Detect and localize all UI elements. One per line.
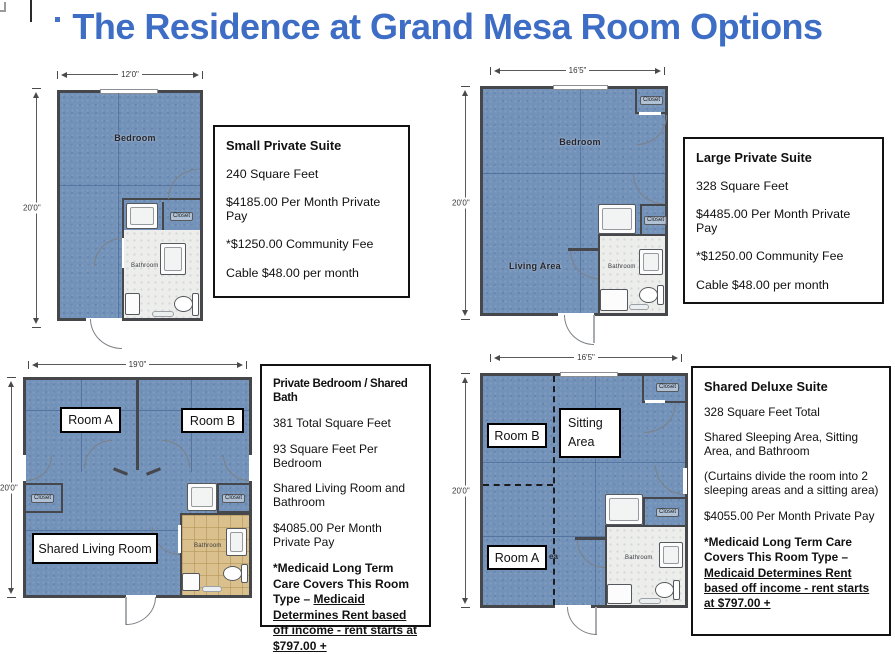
closet-label: Closet bbox=[656, 383, 679, 392]
toilet-fixture bbox=[639, 287, 658, 303]
info-line: Cable $48.00 per month bbox=[696, 278, 875, 293]
living-area-label-fragment: ea bbox=[549, 552, 558, 561]
width-dimension: 16'5" bbox=[490, 353, 682, 362]
window bbox=[100, 89, 158, 94]
floor-area: Closet Room B Sitting Area Room A ea Clo… bbox=[480, 373, 688, 608]
room-b-label: Room B bbox=[190, 414, 235, 428]
info-box-title: Shared Deluxe Suite bbox=[704, 379, 882, 394]
closet: Closet bbox=[635, 89, 665, 114]
floor-area: Closet Bedroom Living Area Closet Bathro… bbox=[480, 86, 668, 316]
entry-door-arc bbox=[567, 607, 597, 635]
entry-door-arc bbox=[90, 319, 122, 349]
info-line: 328 Square Feet bbox=[696, 179, 875, 194]
shower-seat-fixture bbox=[187, 483, 217, 511]
info-box-shared-deluxe-suite: Shared Deluxe Suite 328 Square Feet Tota… bbox=[691, 366, 891, 636]
width-dimension-label: 12'0" bbox=[118, 70, 142, 79]
floor-plan-small-private-suite: 12'0" 20'0" Bedroom Closet Bathroom bbox=[28, 66, 223, 354]
closet: Closet bbox=[162, 202, 200, 230]
width-dimension-label: 16'5" bbox=[566, 66, 590, 75]
width-dimension-label: 19'0" bbox=[126, 360, 150, 369]
floor-area: Room A Room B Closet Closet Bathroom bbox=[23, 377, 252, 598]
closet: Closet bbox=[217, 483, 249, 513]
height-dimension: 20'0" bbox=[30, 88, 42, 328]
interior-wall bbox=[136, 380, 139, 470]
toilet-fixture bbox=[174, 296, 193, 312]
wall-seam bbox=[483, 462, 685, 463]
info-line: Shared Living Room and Bathroom bbox=[273, 481, 422, 509]
sink-fixture bbox=[125, 293, 140, 315]
door-arc bbox=[570, 251, 598, 279]
info-line: Cable $48.00 per month bbox=[226, 266, 401, 281]
bath-mat bbox=[629, 304, 649, 310]
door-arc bbox=[577, 540, 605, 568]
sink-fixture bbox=[600, 289, 628, 311]
door-arc bbox=[655, 465, 685, 495]
toilet-tank bbox=[241, 564, 248, 583]
width-dimension: 19'0" bbox=[28, 360, 247, 369]
bedroom-label: Bedroom bbox=[114, 133, 156, 143]
door-arc bbox=[84, 440, 112, 468]
door-arc bbox=[162, 440, 190, 468]
closet-label: Closet bbox=[656, 508, 679, 517]
info-box-title: Large Private Suite bbox=[696, 150, 875, 165]
toilet-fixture bbox=[655, 582, 674, 598]
closet-label: Closet bbox=[222, 494, 245, 503]
info-line: $4085.00 Per Month Private Pay bbox=[273, 521, 422, 549]
room-b-label-box: Room B bbox=[181, 408, 244, 433]
door-arc bbox=[637, 115, 667, 145]
room-a-label: Room A bbox=[68, 413, 112, 427]
curtain-divider bbox=[553, 376, 555, 605]
closet: Closet bbox=[642, 376, 685, 403]
bathroom-label: Bathroom bbox=[131, 263, 159, 269]
scan-artifact bbox=[30, 0, 32, 22]
bathroom-label: Bathroom bbox=[194, 543, 222, 549]
door-arc bbox=[223, 455, 249, 481]
room-a-label-box: Room A bbox=[60, 407, 121, 433]
height-dimension: 20'0" bbox=[5, 377, 17, 598]
sink-fixture bbox=[182, 573, 200, 591]
info-line: $4485.00 Per Month Private Pay bbox=[696, 207, 875, 236]
entry-door-arc bbox=[564, 315, 594, 345]
sitting-area-label-box: Sitting Area bbox=[559, 408, 621, 458]
toilet-tank bbox=[673, 580, 680, 600]
room-a-label: Room A bbox=[495, 551, 539, 565]
interior-wall bbox=[146, 467, 161, 475]
shower-fixture bbox=[160, 243, 186, 275]
closet: Closet bbox=[26, 483, 63, 513]
info-line: (Curtains divide the room into 2 sleepin… bbox=[704, 470, 882, 498]
height-dimension-label: 20'0" bbox=[452, 198, 470, 209]
height-dimension: 20'0" bbox=[459, 86, 471, 320]
width-dimension-label: 16'5" bbox=[574, 353, 598, 362]
room-b-label-box: Room B bbox=[487, 423, 547, 448]
floor-plan-shared-deluxe-suite: 16'5" 20'0" Closet Room B Sitting Are bbox=[455, 348, 700, 654]
door-arc bbox=[644, 403, 676, 433]
floor-plan-large-private-suite: 16'5" 20'0" Closet Bedroom Living Area C… bbox=[455, 58, 700, 358]
shower-fixture bbox=[639, 249, 663, 275]
info-box-private-bedroom-shared-bath: Private Bedroom / Shared Bath 381 Total … bbox=[260, 364, 431, 627]
floor-area: Bedroom Closet Bathroom bbox=[57, 90, 203, 321]
door-arc bbox=[94, 238, 122, 266]
bathroom-label: Bathroom bbox=[625, 555, 653, 561]
info-box-title: Small Private Suite bbox=[226, 138, 401, 153]
closet-label: Closet bbox=[644, 216, 667, 225]
closet: Closet bbox=[643, 497, 685, 525]
info-line: $4185.00 Per Month Private Pay bbox=[226, 195, 401, 224]
info-line: 93 Square Feet Per Bedroom bbox=[273, 442, 422, 470]
wall-seam bbox=[118, 93, 119, 318]
info-line: Shared Sleeping Area, Sitting Area, and … bbox=[704, 431, 882, 459]
sink-fixture bbox=[607, 584, 632, 604]
curtain-divider bbox=[483, 484, 553, 486]
toilet-tank bbox=[192, 293, 199, 316]
info-box-small-private-suite: Small Private Suite 240 Square Feet $418… bbox=[213, 125, 410, 298]
toilet-tank bbox=[657, 285, 664, 305]
closet: Closet bbox=[640, 204, 665, 234]
info-line: 240 Square Feet bbox=[226, 167, 401, 182]
shared-living-room-label-box: Shared Living Room bbox=[32, 533, 158, 564]
shared-living-room-label: Shared Living Room bbox=[38, 542, 151, 556]
window bbox=[560, 372, 618, 377]
sitting-area-label-line1: Sitting bbox=[568, 414, 603, 433]
height-dimension-label: 20'0" bbox=[452, 485, 470, 496]
door-arc bbox=[26, 455, 52, 481]
info-line: 381 Total Square Feet bbox=[273, 416, 422, 430]
width-dimension: 16'5" bbox=[490, 66, 665, 75]
bedroom-label: Bedroom bbox=[559, 137, 601, 147]
width-dimension: 12'0" bbox=[57, 70, 203, 79]
door-gap bbox=[249, 455, 252, 481]
scan-artifact bbox=[55, 17, 60, 22]
document-page: The Residence at Grand Mesa Room Options… bbox=[0, 0, 895, 654]
closet-label: Closet bbox=[31, 494, 54, 503]
door-gap bbox=[683, 468, 687, 494]
info-line: *$1250.00 Community Fee bbox=[696, 249, 875, 264]
medicaid-note: *Medicaid Long Term Care Covers This Roo… bbox=[273, 561, 422, 654]
info-box-large-private-suite: Large Private Suite 328 Square Feet $448… bbox=[683, 137, 884, 304]
bath-mat bbox=[202, 586, 222, 592]
info-line: $4055.00 Per Month Private Pay bbox=[704, 510, 882, 524]
height-dimension-label: 20'0" bbox=[0, 482, 18, 493]
info-line: 328 Square Feet Total bbox=[704, 406, 882, 420]
closet-label: Closet bbox=[170, 212, 193, 221]
room-a-label-box: Room A bbox=[487, 545, 547, 570]
interior-wall bbox=[113, 467, 128, 475]
room-b-label: Room B bbox=[494, 429, 539, 443]
medicaid-note: *Medicaid Long Term Care Covers This Roo… bbox=[704, 535, 882, 612]
toilet-fixture bbox=[223, 566, 242, 581]
scan-artifact bbox=[0, 2, 6, 12]
shower-seat-fixture bbox=[126, 203, 158, 229]
bathroom-label: Bathroom bbox=[608, 264, 636, 270]
bath-mat bbox=[152, 311, 174, 317]
closet-label: Closet bbox=[640, 96, 663, 105]
door-arc bbox=[633, 174, 663, 204]
page-title: The Residence at Grand Mesa Room Options bbox=[72, 6, 822, 48]
living-area-label: Living Area bbox=[509, 261, 561, 271]
wall-seam bbox=[580, 89, 581, 313]
bath-mat bbox=[639, 598, 661, 604]
shower-seat-fixture bbox=[598, 204, 636, 234]
height-dimension: 20'0" bbox=[459, 373, 471, 608]
entry-door-arc bbox=[126, 597, 156, 625]
height-dimension-label: 20'0" bbox=[23, 203, 41, 214]
door-arc bbox=[168, 169, 198, 199]
info-line: *$1250.00 Community Fee bbox=[226, 237, 401, 252]
info-box-title: Private Bedroom / Shared Bath bbox=[273, 377, 422, 404]
floor-plan-private-bedroom-shared-bath: 19'0" 20'0" Room A Room B bbox=[0, 352, 262, 652]
shower-seat-fixture bbox=[605, 494, 643, 525]
shower-fixture bbox=[659, 542, 683, 568]
sitting-area-label-line2: Area bbox=[568, 433, 594, 452]
shower-fixture bbox=[226, 528, 247, 556]
